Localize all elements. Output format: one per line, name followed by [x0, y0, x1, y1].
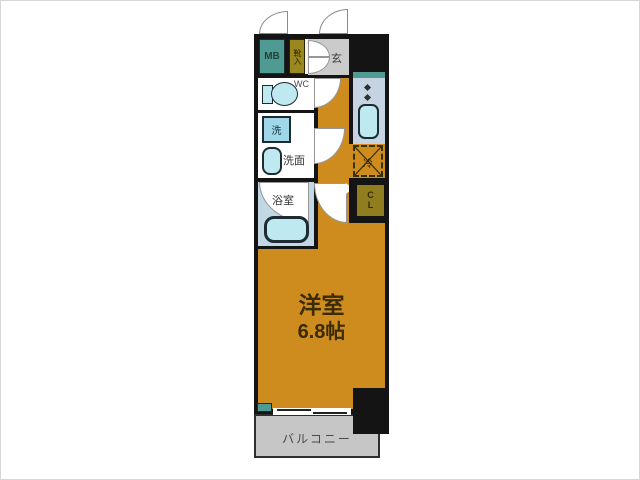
washroom-sink-icon	[262, 147, 282, 175]
washroom-label: 洗面	[283, 152, 305, 168]
stove-burner-icon	[364, 84, 371, 91]
bathroom: 浴室	[258, 182, 314, 246]
kitchen-area	[353, 78, 385, 144]
bathroom-label: 浴室	[272, 192, 294, 208]
exterior-door-arc-right-icon	[319, 9, 348, 34]
main-room: 洋室 6.8帖	[258, 249, 385, 409]
meter-box-label: MB	[264, 51, 280, 62]
exterior-door-arc-left-icon	[259, 11, 288, 34]
entrance-door-arc-lower-icon	[308, 57, 330, 74]
closet: C L	[357, 185, 384, 216]
main-room-size: 6.8帖	[258, 320, 385, 345]
washroom: 洗 洗面	[258, 113, 314, 178]
main-room-label: 洋室 6.8帖	[258, 291, 385, 345]
washer-label: 洗	[272, 122, 282, 137]
floorplan-image: 洋室 6.8帖 MB 靴入 玄 WC 洗 洗面 浴室	[0, 0, 640, 480]
meter-box-room: MB	[259, 39, 285, 74]
stove-burner-icon	[364, 94, 371, 101]
closet-label-l: L	[368, 201, 374, 210]
entrance-label: 玄	[331, 50, 342, 66]
wc-label: WC	[294, 79, 309, 89]
shoe-box: 靴入	[289, 39, 305, 74]
window-pane	[277, 409, 311, 411]
entrance-area: 玄	[308, 39, 349, 75]
main-room-name: 洋室	[258, 291, 385, 320]
sliding-window-icon	[273, 408, 351, 415]
fridge-space: 冷	[353, 145, 383, 177]
washing-machine-icon: 洗	[262, 116, 291, 143]
entrance-door-arc-upper-icon	[308, 40, 330, 57]
fridge-label: 冷	[355, 155, 381, 170]
structural-block	[353, 388, 389, 434]
shoe-box-label: 靴入	[293, 49, 301, 65]
kitchen-sink-icon	[358, 104, 379, 139]
window-pane	[313, 412, 347, 414]
small-utility-box	[257, 403, 272, 412]
bathtub-icon	[264, 216, 309, 243]
wc-room: WC	[258, 78, 314, 110]
